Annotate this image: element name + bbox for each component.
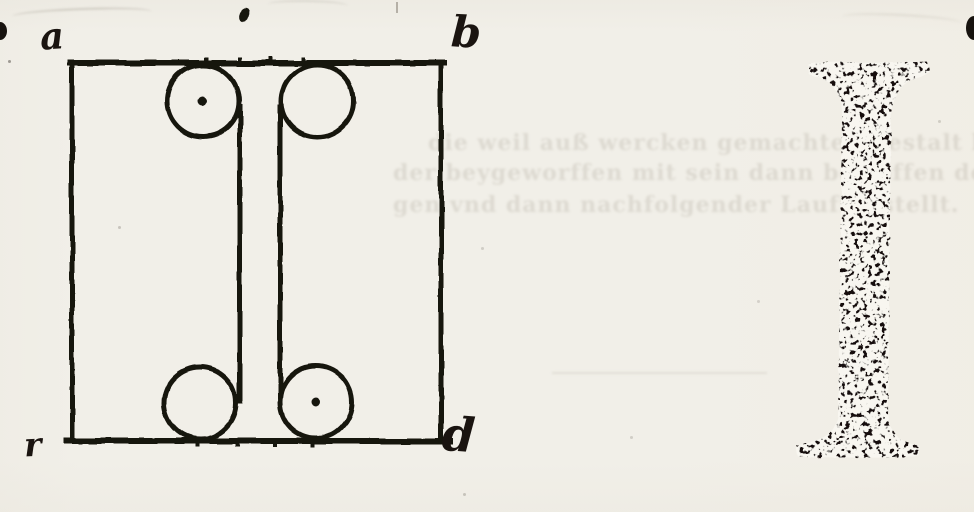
paper-speck	[8, 60, 11, 63]
pencil-smudge	[268, 0, 348, 11]
serif-construction-circle	[281, 65, 353, 137]
scan-edge-artifact	[966, 16, 974, 40]
paper-speck	[481, 247, 484, 250]
pencil-smudge	[842, 11, 962, 29]
letter-I-glyph	[796, 61, 930, 458]
paper-speck	[118, 226, 121, 229]
paper-speck	[757, 300, 760, 303]
showthrough-line	[552, 372, 767, 374]
letter-I-specimen	[0, 0, 974, 512]
serif-construction-circle	[280, 366, 352, 438]
paper-speck	[463, 493, 466, 496]
construction-diagram	[0, 0, 974, 512]
corner-label-bottom-right: d	[440, 411, 476, 460]
compass-center-dot	[199, 97, 208, 106]
bleedthrough-line: der beygeworffen mit sein dann bey offen…	[393, 160, 974, 186]
serif-construction-circle	[167, 65, 239, 137]
compass-center-dot	[312, 398, 321, 407]
corner-label-top-left: a	[39, 17, 66, 56]
scan-edge-artifact	[0, 22, 7, 40]
book-page: die weil auß wercken gemachten gestalt b…	[0, 0, 974, 512]
corner-label-bottom-left: r	[23, 428, 42, 462]
stray-ink-mark	[396, 2, 398, 13]
ink-blot	[238, 7, 253, 24]
paper-speck	[938, 120, 941, 123]
paper-speck	[630, 436, 633, 439]
bleedthrough-line: die weil auß wercken gemachten gestalt b…	[428, 130, 974, 156]
corner-label-top-right: b	[450, 11, 482, 56]
pencil-smudge	[12, 6, 152, 23]
bleedthrough-line: gen vnd dann nachfolgender Lauffgestellt…	[393, 192, 959, 218]
serif-construction-circle	[164, 367, 236, 439]
